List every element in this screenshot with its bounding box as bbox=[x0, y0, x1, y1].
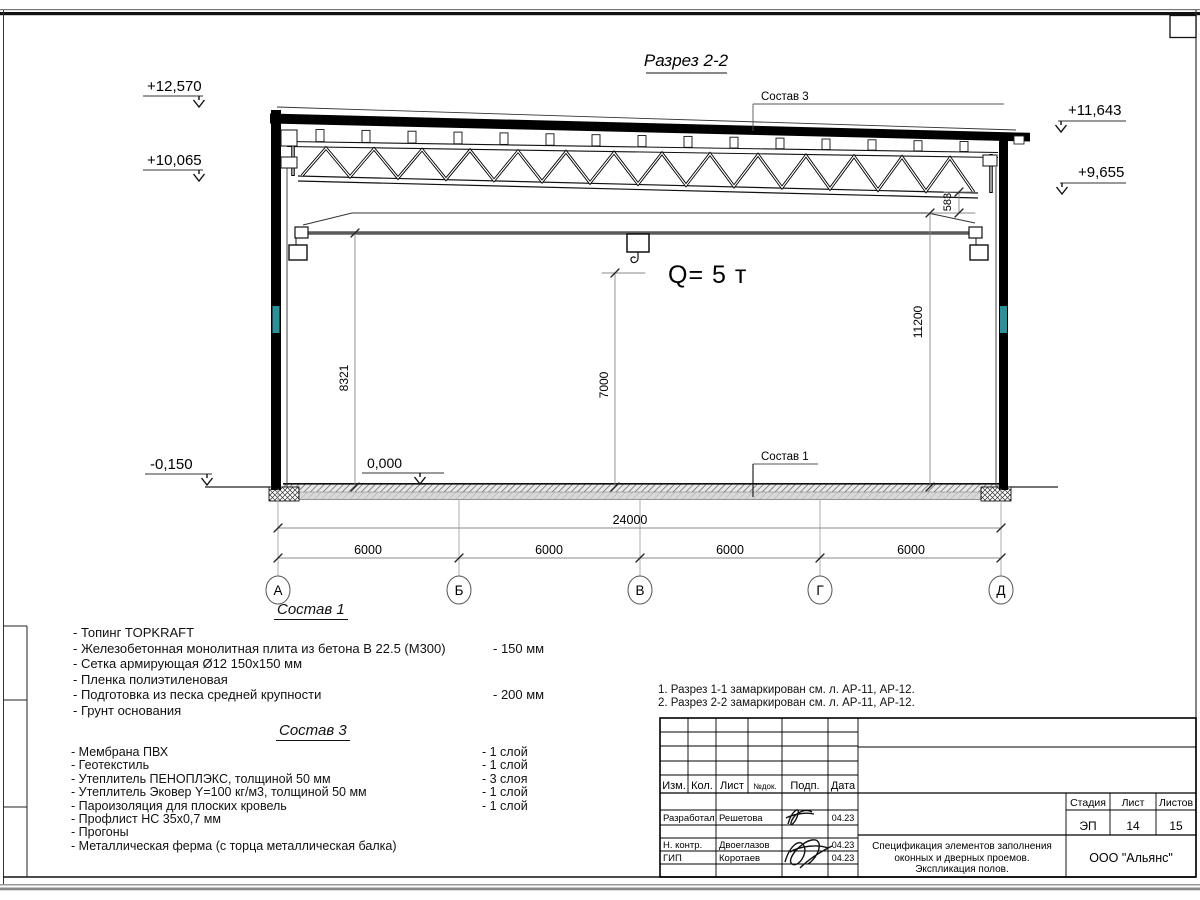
dim-8321: 8321 bbox=[337, 364, 351, 391]
item-text: - Утеплитель ПЕНОПЛЭКС, толщиной 50 мм bbox=[71, 772, 331, 786]
item-value: - 150 мм bbox=[493, 641, 544, 657]
sheets-value: 15 bbox=[1169, 819, 1183, 833]
dim-24000: 24000 bbox=[613, 513, 648, 527]
sostav3-item: - Профлист НС 35х0,7 мм bbox=[71, 813, 562, 826]
purlin-section bbox=[500, 133, 508, 145]
purlin-section bbox=[960, 142, 968, 152]
item-text: - Геотекстиль bbox=[71, 758, 149, 772]
dim-bay-1: 6000 bbox=[354, 543, 382, 557]
hoist-hook bbox=[631, 257, 638, 263]
stamp-signature-rows: Разработал Решетова 04.23 Н. контр. Двое… bbox=[663, 813, 854, 864]
sostav3-block: Состав 3 - Мембрана ПВХ- 1 слой - Геотек… bbox=[62, 722, 562, 853]
stamp-stage-block: Стадия Лист Листов ЭП 14 15 bbox=[1070, 797, 1193, 833]
purlin-section bbox=[822, 139, 830, 150]
dim-bay-2: 6000 bbox=[535, 543, 563, 557]
sostav1-item: - Топинг TOPKRAFT bbox=[73, 625, 562, 641]
crane-capacity-label: Q= 5 т bbox=[668, 261, 747, 289]
purlin-section bbox=[592, 135, 600, 146]
column-left bbox=[271, 110, 281, 490]
leader-sostav3-label: Состав 3 bbox=[761, 91, 809, 103]
sostav1-item: - Грунт основания bbox=[73, 703, 562, 719]
item-value: - 1 слой bbox=[482, 746, 528, 759]
dim-bay-4: 6000 bbox=[897, 543, 925, 557]
purlin-section bbox=[316, 130, 324, 142]
view-title: Разрез 2-2 bbox=[644, 51, 729, 73]
elev-left-bottom: -0,150 bbox=[150, 456, 193, 473]
note-line: 1. Разрез 1-1 замаркирован см. л. АР-11,… bbox=[658, 684, 915, 697]
item-value: - 200 мм bbox=[493, 687, 544, 703]
purlin-section bbox=[730, 137, 738, 148]
stamp-name-3: Коротаев bbox=[719, 853, 760, 864]
elev-right-mid: +9,655 bbox=[1078, 164, 1124, 181]
sostav1-item: - Сетка армирующая Ø12 150х150 мм bbox=[73, 656, 562, 672]
item-text: - Мембрана ПВХ bbox=[71, 745, 168, 759]
item-value: - 3 слоя bbox=[482, 773, 527, 786]
purlin-section bbox=[914, 141, 922, 151]
dim-7000: 7000 bbox=[597, 371, 611, 398]
sostav1-item: - Пленка полиэтиленовая bbox=[73, 672, 562, 688]
stamp-date-2: 04.23 bbox=[832, 840, 855, 850]
elev-left-mid: +10,065 bbox=[147, 152, 202, 169]
doc-title-line-2: оконных и дверных проемов. bbox=[894, 853, 1029, 864]
item-text: - Пароизоляция для плоских кровель bbox=[71, 799, 287, 813]
crane-runway: Q= 5 т bbox=[289, 213, 988, 289]
axis-label-g: Г bbox=[816, 583, 824, 598]
left-margin-strip bbox=[3, 626, 27, 877]
rail-bracket-right-upper bbox=[969, 227, 982, 238]
item-value: - 1 слой bbox=[482, 786, 528, 799]
roof-end-detail bbox=[1014, 136, 1024, 144]
drawing-sheet: { "drawing": { "title": "Разрез 2-2", "c… bbox=[0, 0, 1200, 900]
item-text: - Утеплитель Эковер Y=100 кг/м3, толщино… bbox=[71, 785, 367, 799]
truss-web-members bbox=[302, 148, 974, 192]
top-chord-line2 bbox=[287, 147, 998, 158]
section-title: Разрез 2-2 bbox=[644, 51, 729, 70]
stamp-role-3: ГИП bbox=[663, 853, 682, 864]
item-text: - Прогоны bbox=[71, 825, 129, 839]
truss-diagonals bbox=[302, 148, 974, 192]
sheets-label: Листов bbox=[1159, 797, 1194, 809]
elev-left-top: +12,570 bbox=[147, 78, 202, 95]
roof-truss bbox=[281, 130, 998, 199]
leader-sostav1-label: Состав 1 bbox=[761, 451, 809, 463]
runway-top-profile bbox=[303, 213, 975, 225]
dim-11200: 11200 bbox=[911, 305, 925, 338]
sostav1-item: - Железобетонная монолитная плита из бет… bbox=[73, 641, 562, 657]
stage-value: ЭП bbox=[1079, 819, 1096, 833]
purlin-section bbox=[776, 138, 784, 149]
stamp-col-podp: Подп. bbox=[790, 780, 819, 792]
item-value: - 1 слой bbox=[482, 800, 528, 813]
axis-bubbles: А Б В Г Д bbox=[266, 576, 1013, 604]
axis-label-d: Д bbox=[996, 583, 1005, 598]
item-text: - Профлист НС 35х0,7 мм bbox=[71, 812, 221, 826]
purlin-section bbox=[868, 140, 876, 150]
floor-slab bbox=[283, 484, 1000, 500]
item-text: - Сетка армирующая Ø12 150х150 мм bbox=[73, 656, 302, 671]
column-opening-mark-left bbox=[273, 306, 280, 333]
sheet-label: Лист bbox=[1122, 797, 1145, 809]
corner-inventory-box bbox=[1170, 16, 1196, 38]
item-value: - 1 слой bbox=[482, 759, 528, 772]
stamp-col-ndok: №док. bbox=[753, 782, 776, 791]
elev-right-top: +11,643 bbox=[1068, 102, 1122, 119]
sheet-value: 14 bbox=[1126, 819, 1140, 833]
stamp-doc-title: Спецификация элементов заполнения оконны… bbox=[872, 840, 1052, 875]
stamp-col-data: Дата bbox=[831, 780, 856, 792]
stamp-role-1: Разработал bbox=[663, 813, 715, 824]
purlin-section bbox=[684, 136, 692, 147]
sostav1-heading: Состав 1 bbox=[274, 601, 348, 620]
sostav3-item: - Утеплитель ПЕНОПЛЭКС, толщиной 50 мм- … bbox=[71, 773, 562, 786]
stamp-col-izm: Изм. bbox=[662, 780, 686, 792]
purlin-section bbox=[362, 130, 370, 142]
item-text: - Грунт основания bbox=[73, 703, 181, 718]
truss-bearing-left bbox=[281, 130, 297, 146]
sostav1-item: - Подготовка из песка средней крупности-… bbox=[73, 687, 562, 703]
stamp-date-3: 04.23 bbox=[832, 853, 855, 863]
purlin-section bbox=[408, 131, 416, 143]
signature-1 bbox=[786, 810, 814, 825]
purlin-section bbox=[454, 132, 462, 144]
dim-ticks-bottom bbox=[274, 524, 1005, 562]
rail-bracket-right-lower bbox=[970, 245, 988, 260]
column-opening-mark-right bbox=[1000, 306, 1007, 333]
sostav3-item: - Утеплитель Эковер Y=100 кг/м3, толщино… bbox=[71, 786, 562, 799]
axis-label-v: В bbox=[635, 583, 644, 598]
stamp-col-kol: Кол. bbox=[691, 780, 713, 792]
stamp-role-2: Н. контр. bbox=[663, 840, 702, 851]
company-name: ООО "Альянс" bbox=[1089, 851, 1173, 865]
roof bbox=[270, 107, 1030, 144]
stamp-name-2: Двоеглазов bbox=[719, 840, 770, 851]
stamp-col-list: Лист bbox=[720, 780, 744, 792]
stamp-name-1: Решетова bbox=[719, 813, 763, 824]
truss-seat-left bbox=[281, 157, 297, 168]
doc-title-line-3: Экспликация полов. bbox=[915, 864, 1009, 875]
axis-label-b: Б bbox=[455, 583, 464, 598]
purlin-section bbox=[638, 136, 646, 147]
dim-583: 583 bbox=[942, 193, 954, 211]
elev-floor: 0,000 bbox=[367, 455, 402, 471]
elevation-arrows bbox=[194, 96, 1068, 485]
dim-bay-3: 6000 bbox=[716, 543, 744, 557]
roof-deck bbox=[270, 114, 1030, 142]
item-text: - Металлическая ферма (с торца металличе… bbox=[71, 839, 397, 853]
sostav3-item: - Геотекстиль- 1 слой bbox=[71, 759, 562, 772]
hoist-trolley bbox=[627, 234, 649, 252]
axis-label-a: А bbox=[273, 583, 282, 598]
truss-bearing-right bbox=[983, 155, 997, 166]
item-text: - Пленка полиэтиленовая bbox=[73, 672, 228, 687]
item-text: - Железобетонная монолитная плита из бет… bbox=[73, 641, 446, 656]
sostav3-item: - Металлическая ферма (с торца металличе… bbox=[71, 840, 562, 853]
item-text: - Подготовка из песка средней крупности bbox=[73, 687, 321, 702]
title-block: Изм. Кол. Лист №док. Подп. Дата Разработ… bbox=[660, 718, 1196, 877]
stamp-date-1: 04.23 bbox=[832, 813, 855, 823]
sostav3-item: - Прогоны bbox=[71, 826, 562, 839]
stamp-header-row: Изм. Кол. Лист №док. Подп. Дата bbox=[662, 780, 856, 792]
stage-label: Стадия bbox=[1070, 797, 1106, 809]
sostav3-item: - Мембрана ПВХ- 1 слой bbox=[71, 746, 562, 759]
sostav3-item: - Пароизоляция для плоских кровель- 1 сл… bbox=[71, 800, 562, 813]
doc-title-line-1: Спецификация элементов заполнения bbox=[872, 840, 1052, 852]
item-text: - Топинг TOPKRAFT bbox=[73, 625, 194, 640]
rail-bracket-left-upper bbox=[295, 227, 308, 238]
sostav1-block: Состав 1 - Топинг TOPKRAFT - Железобетон… bbox=[62, 601, 562, 719]
note-line: 2. Разрез 2-2 замаркирован см. л. АР-11,… bbox=[658, 697, 915, 710]
sostav3-heading: Состав 3 bbox=[276, 722, 350, 741]
rail-bracket-left-lower bbox=[289, 245, 307, 260]
purlin-section bbox=[546, 134, 554, 145]
notes-block: 1. Разрез 1-1 замаркирован см. л. АР-11,… bbox=[658, 684, 915, 710]
